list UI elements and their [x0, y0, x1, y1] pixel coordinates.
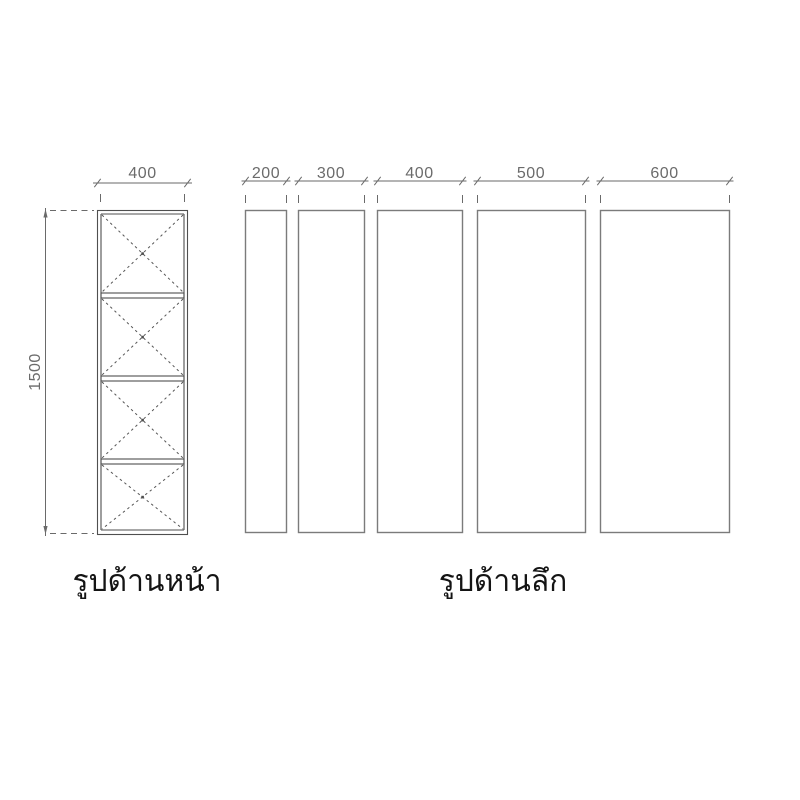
- depth-panel-200: [242, 177, 291, 533]
- compartment-x-braces: [102, 215, 183, 529]
- depth-view-caption: รูปด้านลึก: [413, 560, 593, 604]
- x-brace-center-dots: [141, 252, 144, 498]
- depth-panel-600: [597, 177, 734, 533]
- depth-panel-300: [295, 177, 369, 533]
- shelf-1: [101, 293, 184, 298]
- depth-panel-400: [374, 177, 467, 533]
- technical-drawing-linework: [0, 0, 800, 800]
- front-height-dimension: [43, 208, 94, 536]
- front-view-drawing: [43, 179, 192, 536]
- front-height-dim-text: 1500: [26, 342, 46, 402]
- depth-panel-400-dim-text: 400: [377, 166, 462, 182]
- depth-panel-300-dim-text: 300: [298, 166, 364, 182]
- shelf-2: [101, 376, 184, 381]
- front-width-dim-text: 400: [97, 166, 188, 182]
- depth-panel-500-dim-text: 500: [477, 166, 585, 182]
- front-view-caption: รูปด้านหน้า: [57, 560, 237, 604]
- depth-panel-500: [474, 177, 590, 533]
- depth-panel-200-dim-text: 200: [245, 166, 287, 182]
- depth-view-drawing: [242, 177, 734, 533]
- shelf-3: [101, 459, 184, 464]
- front-width-dimension: [93, 179, 192, 207]
- drawing-canvas: 400 1500 200 300 400 500 600 รูปด้านหน้า…: [0, 0, 800, 800]
- front-cabinet-outline: [98, 211, 188, 535]
- depth-panel-600-dim-text: 600: [600, 166, 729, 182]
